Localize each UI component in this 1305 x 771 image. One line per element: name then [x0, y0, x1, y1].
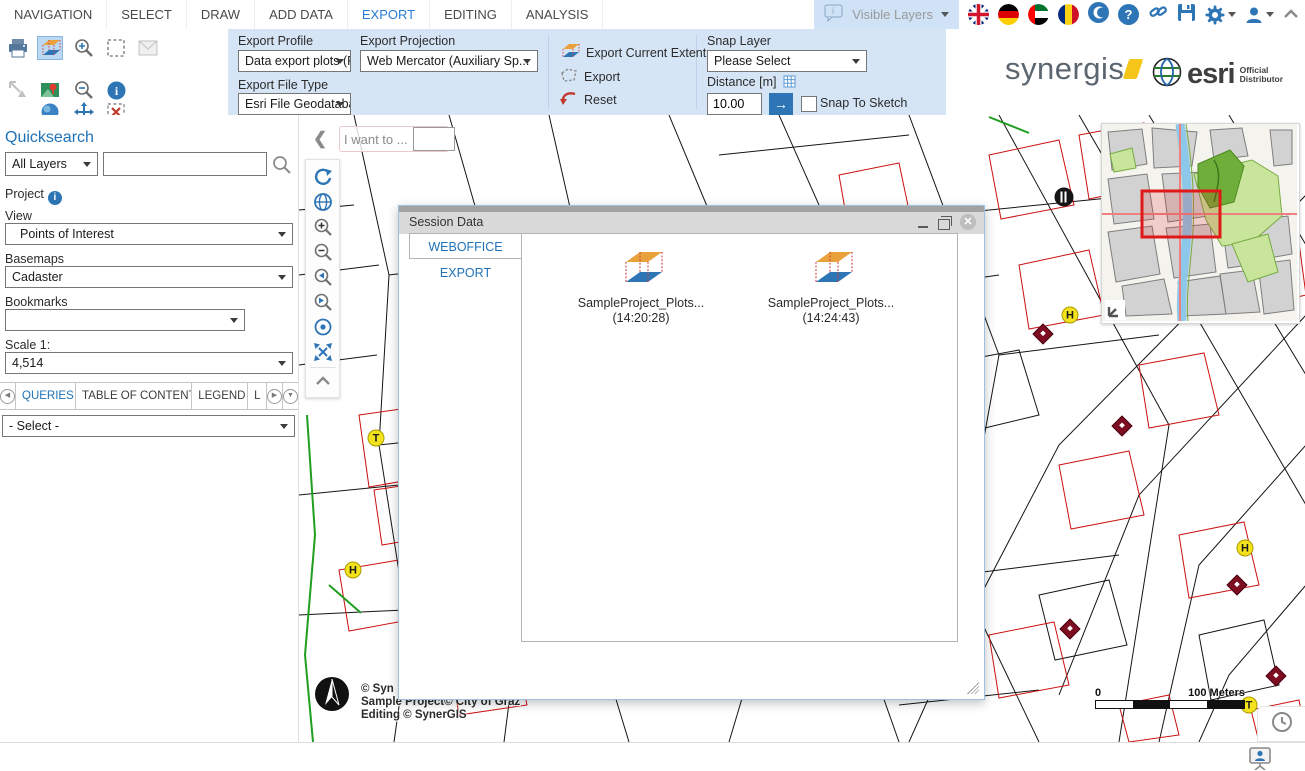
export-projection-select[interactable]: Web Mercator (Auxiliary Sp... — [360, 50, 538, 72]
view-select[interactable]: Points of Interest — [5, 223, 293, 245]
basemaps-label: Basemaps — [5, 252, 64, 266]
session-data-dialog: Session Data ✕ WEBOFFICE EXPORT SamplePr… — [398, 205, 985, 700]
chevron-down-icon — [941, 12, 949, 17]
export-polygon-icon — [560, 67, 578, 86]
hydrant-marker-icon: H — [345, 562, 362, 579]
snap-layer-label: Snap Layer — [707, 34, 771, 48]
synergis-spark-icon — [1123, 59, 1143, 79]
refresh-icon[interactable] — [310, 164, 336, 189]
snap-to-sketch-checkbox[interactable] — [801, 96, 817, 112]
visible-layers-label: Visible Layers — [852, 7, 933, 22]
project-label: Projecti — [5, 187, 62, 205]
flag-uae-icon[interactable] — [1028, 4, 1049, 25]
export-projection-label: Export Projection — [360, 34, 455, 48]
clock-icon — [1271, 711, 1293, 738]
left-panel: Quicksearch All Layers Projecti View Poi… — [0, 115, 298, 771]
restaurant-marker-icon — [1055, 188, 1074, 207]
distance-input[interactable] — [707, 93, 762, 115]
overview-map[interactable] — [1101, 123, 1300, 324]
reset-button[interactable]: Reset — [560, 91, 617, 109]
basemaps-select[interactable]: Cadaster — [5, 266, 293, 288]
previous-extent-icon[interactable] — [310, 264, 336, 289]
flag-romania-icon[interactable] — [1058, 4, 1079, 25]
menu-analysis[interactable]: ANALYSIS — [512, 0, 604, 29]
bookmarks-select[interactable] — [5, 309, 245, 331]
chevron-down-icon — [1228, 12, 1236, 17]
resize-grip[interactable] — [967, 682, 979, 694]
export-button[interactable]: Export — [560, 67, 620, 86]
search-icon[interactable] — [272, 155, 291, 179]
export-package-icon — [808, 249, 854, 287]
presentation-icon[interactable] — [1248, 747, 1272, 771]
menu-draw[interactable]: DRAW — [187, 0, 255, 29]
ribbon-separator — [548, 35, 549, 109]
menu-navigation[interactable]: NAVIGATION — [0, 0, 107, 29]
tab-table-of-content[interactable]: TABLE OF CONTENT — [76, 383, 192, 409]
bookmarks-label: Bookmarks — [5, 295, 68, 309]
globe-icon[interactable] — [310, 189, 336, 214]
next-extent-icon[interactable] — [310, 289, 336, 314]
zoom-in-icon[interactable] — [72, 37, 96, 59]
zoom-out-icon[interactable] — [72, 79, 96, 101]
query-select[interactable]: - Select - — [2, 415, 295, 437]
i-want-to-widget[interactable]: I want to ... — [339, 126, 449, 152]
scalebar-bar — [1095, 700, 1245, 709]
ribbon-export-panel: Export Profile Data export plots (FGDB) … — [228, 29, 946, 115]
grid-icon[interactable] — [783, 75, 796, 91]
close-icon[interactable]: ✕ — [960, 214, 976, 230]
export-profile-label: Export Profile — [238, 34, 313, 48]
scalebar-zero: 0 — [1095, 687, 1101, 699]
compass-north-arrow-icon — [313, 675, 351, 718]
tab-menu-icon[interactable]: ▼ — [283, 383, 298, 409]
user-icon[interactable] — [1245, 6, 1274, 24]
esri-logo: esri OfficialDistributor — [1152, 57, 1283, 92]
menu-add-data[interactable]: ADD DATA — [255, 0, 348, 29]
scale-label: Scale 1: — [5, 338, 50, 352]
restore-icon[interactable] — [938, 219, 950, 230]
tab-scroll-left-icon[interactable]: ◀ — [0, 383, 16, 409]
monument-marker-icon — [1032, 323, 1053, 344]
menu-editing[interactable]: EDITING — [430, 0, 512, 29]
dialog-title: Session Data — [409, 215, 483, 229]
collapse-chevron-icon[interactable] — [1283, 6, 1299, 24]
tab-queries[interactable]: QUERIES — [16, 383, 76, 409]
comment-info-icon: i — [824, 4, 844, 25]
apply-distance-button[interactable]: → — [769, 93, 793, 115]
export-3d-icon[interactable] — [38, 37, 62, 59]
flag-germany-icon[interactable] — [998, 4, 1019, 25]
zoom-in-icon[interactable] — [310, 214, 336, 239]
project-info-icon[interactable]: i — [48, 191, 62, 205]
quicksearch-title[interactable]: Quicksearch — [5, 129, 94, 147]
select-rect-icon[interactable] — [104, 37, 128, 59]
quicksearch-layer-select[interactable]: All Layers — [5, 152, 98, 176]
crescent-icon[interactable] — [1088, 2, 1109, 28]
flag-uk-icon[interactable] — [968, 4, 989, 25]
tab-weboffice-export[interactable]: WEBOFFICE EXPORT — [409, 233, 522, 259]
i-want-to-label: I want to ... — [344, 132, 408, 147]
tab-legend[interactable]: LEGEND — [192, 383, 248, 409]
tram-stop-marker-icon: T — [368, 430, 385, 447]
overview-collapse-icon[interactable] — [1105, 300, 1125, 320]
time-slider-button[interactable] — [1257, 706, 1305, 742]
collapse-sidebar-icon[interactable]: ❮ — [313, 129, 327, 149]
export-file-type-select[interactable]: Esri File Geodatabase — [238, 93, 351, 115]
distance-label: Distance [m] — [707, 75, 796, 91]
monument-marker-icon — [1111, 415, 1132, 436]
scalebar-distance: 100 Meters — [1188, 687, 1245, 699]
weboffice-app: NAVIGATION SELECT DRAW ADD DATA EXPORT E… — [0, 0, 1305, 771]
monument-marker-icon — [1226, 574, 1247, 595]
center-point-icon[interactable] — [310, 314, 336, 339]
save-icon[interactable] — [1177, 3, 1196, 27]
minimize-icon[interactable] — [918, 226, 928, 228]
menu-select[interactable]: SELECT — [107, 0, 187, 29]
email-icon[interactable] — [136, 37, 160, 59]
menubar-right-icons: i Visible Layers ? — [814, 0, 1299, 29]
i-want-to-input[interactable] — [413, 127, 455, 151]
help-icon[interactable]: ? — [1118, 4, 1139, 25]
monument-marker-icon — [1265, 665, 1286, 686]
session-items-panel: SampleProject_Plots...(14:20:28) SampleP… — [521, 233, 958, 642]
map-pin-icon[interactable] — [38, 79, 62, 101]
menu-export[interactable]: EXPORT — [348, 0, 430, 29]
export-extent-icon — [560, 42, 580, 63]
export-profile-select[interactable]: Data export plots (FGDB) — [238, 50, 351, 72]
reset-icon — [560, 91, 578, 109]
zoom-out-icon[interactable] — [310, 239, 336, 264]
main-menubar: NAVIGATION SELECT DRAW ADD DATA EXPORT E… — [0, 0, 1305, 29]
session-export-item[interactable]: SampleProject_Plots...(14:20:28) — [556, 249, 726, 326]
monument-marker-icon — [1059, 618, 1080, 639]
export-file-type-label: Export File Type — [238, 78, 328, 92]
link-icon[interactable] — [1148, 2, 1168, 27]
chevron-up-icon[interactable] — [310, 367, 336, 393]
bottom-strip — [0, 742, 1305, 771]
snap-layer-select[interactable]: Please Select — [707, 50, 867, 72]
panel-tabbar: ◀ QUERIES TABLE OF CONTENT LEGEND L ▶ ▼ — [0, 382, 298, 410]
gear-icon[interactable] — [1205, 5, 1236, 25]
session-export-item[interactable]: SampleProject_Plots...(14:24:43) — [746, 249, 916, 326]
scalebar: 0100 Meters — [1095, 687, 1245, 709]
chevron-down-icon — [1266, 12, 1274, 17]
view-label: View — [5, 209, 32, 223]
quicksearch-input[interactable] — [103, 152, 267, 176]
tab-scroll-right-icon[interactable]: ▶ — [267, 383, 283, 409]
tab-truncated[interactable]: L — [248, 383, 267, 409]
print-icon[interactable] — [6, 37, 30, 59]
info-icon[interactable]: i — [104, 79, 128, 101]
share-icon[interactable] — [6, 79, 30, 101]
scale-select[interactable]: 4,514 — [5, 352, 293, 374]
export-ribbon: i Export Profile Data export plots (FGDB… — [0, 29, 1305, 115]
hydrant-marker-icon: H — [1237, 540, 1254, 557]
svg-text:i: i — [832, 6, 834, 16]
visible-layers-dropdown[interactable]: i Visible Layers — [814, 0, 959, 29]
export-package-icon — [618, 249, 664, 287]
esri-globe-icon — [1152, 57, 1182, 92]
dialog-titlebar[interactable]: Session Data ✕ — [399, 212, 984, 234]
map-toolbar — [305, 159, 340, 398]
full-extent-icon[interactable] — [310, 339, 336, 364]
hydrant-marker-icon: H — [1062, 307, 1079, 324]
synergis-logo: synergis — [1005, 51, 1140, 87]
export-current-extent-button[interactable]: Export Current Extent — [560, 42, 706, 63]
snap-to-sketch-label: Snap To Sketch — [820, 96, 907, 110]
